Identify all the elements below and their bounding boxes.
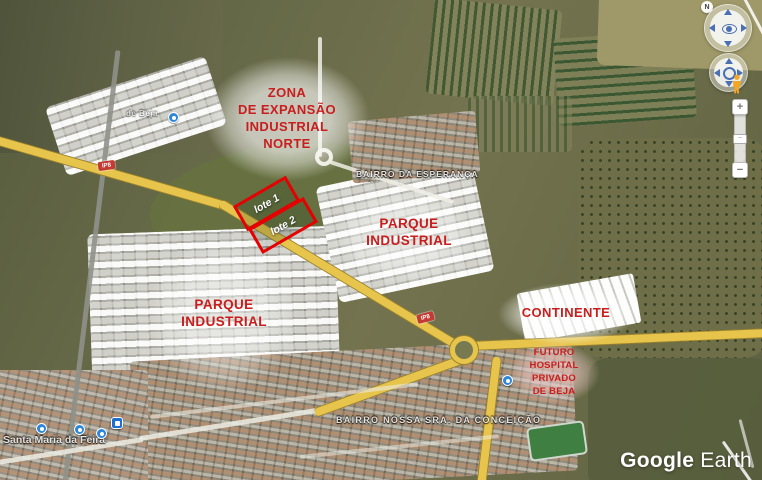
look-left-icon[interactable]	[709, 24, 715, 32]
annotation-futuro-hospital: FUTURO HOSPITAL PRIVADO DE BEJA	[514, 345, 594, 401]
stadium-field	[526, 420, 588, 462]
google-earth-viewport[interactable]: lote 1 lote 2 ZONA DE EXPANSÃO INDUSTRIA…	[0, 0, 762, 480]
annotation-parque-industrial-right: PARQUE INDUSTRIAL	[343, 210, 475, 256]
zoom-slider-handle[interactable]: −	[733, 134, 747, 144]
zoom-out-button[interactable]: −	[732, 162, 748, 178]
roundabout-main	[450, 336, 478, 364]
move-up-icon[interactable]	[725, 58, 733, 64]
terrain-vineyard-3	[468, 96, 572, 152]
transit-poi-icon[interactable]	[74, 424, 85, 435]
place-label-bairro-esperanca: BAIRRO DA ESPERANÇA	[356, 169, 479, 179]
station-poi-icon[interactable]	[111, 417, 123, 429]
annotation-zona-expansao: ZONA DE EXPANSÃO INDUSTRIAL NORTE	[207, 58, 367, 180]
place-label-bairro-conceicao: BAIRRO NOSSA SRA. DA CONCEIÇÃO	[336, 415, 541, 425]
pegman-person-icon	[730, 74, 744, 94]
look-right-icon[interactable]	[741, 24, 747, 32]
terrain-vineyard-1	[425, 0, 562, 106]
annotation-parque-industrial-left: PARQUE INDUSTRIAL	[158, 291, 290, 337]
move-left-icon[interactable]	[714, 69, 720, 77]
lot-2-label: lote 2	[268, 213, 298, 237]
eye-icon	[722, 24, 737, 34]
google-earth-logo: GoogleEarth	[620, 449, 752, 473]
annotation-continente: CONTINENTE	[500, 302, 632, 322]
road-shield-ip8-center: IP8	[416, 311, 435, 324]
transit-poi-icon[interactable]	[36, 423, 47, 434]
look-up-icon[interactable]	[724, 9, 732, 15]
look-joystick[interactable]	[704, 4, 752, 52]
business-poi-icon[interactable]	[168, 112, 179, 123]
place-label-beja-fragment: de Beja	[126, 109, 158, 118]
look-down-icon[interactable]	[724, 41, 732, 47]
transit-poi-icon[interactable]	[96, 428, 107, 439]
pegman-street-view-icon[interactable]	[730, 74, 744, 94]
place-label-santa-maria-da-feira: Santa Maria da Feira	[3, 434, 105, 446]
earth-logo-text: Earth	[700, 449, 752, 472]
zoom-in-button[interactable]: +	[732, 99, 748, 115]
google-logo-text: Google	[620, 449, 694, 472]
transit-poi-icon[interactable]	[502, 375, 513, 386]
